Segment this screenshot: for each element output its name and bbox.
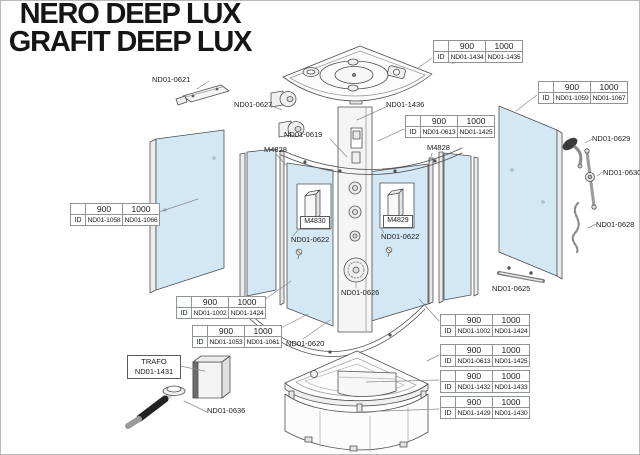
size-table-tray-front-panel: 900 1000 ID ND01-1429 ND01-1430 xyxy=(440,396,530,419)
size-table-right-back-panel: 900 1000 ID ND01-1059 ND01-1067 xyxy=(538,81,628,104)
trafo-line1: TRAFO xyxy=(128,357,180,367)
col-1000: 1000 xyxy=(493,315,530,326)
code-900: ND01-1053 xyxy=(208,337,245,348)
table-corner-cell xyxy=(177,297,192,308)
right-door-drawing xyxy=(368,164,428,322)
part-label-top-curved-rail: ND01-0619 xyxy=(284,131,322,139)
table-corner-cell xyxy=(193,326,208,337)
size-table-door-right: 900 1000 ID ND01-1002 ND01-1424 xyxy=(440,314,530,337)
size-table-left-back-panel: 900 1000 ID ND01-1058 ND01-1066 xyxy=(70,203,160,226)
code-1000: ND01-1061 xyxy=(245,337,282,348)
col-1000: 1000 xyxy=(493,371,530,382)
right-back-panel-drawing xyxy=(499,106,562,279)
col-900: 900 xyxy=(86,204,123,215)
size-table-fixed-glass: 900 1000 ID ND01-1053 ND01-1061 xyxy=(192,325,282,348)
table-corner-cell xyxy=(406,116,421,127)
col-1000: 1000 xyxy=(458,116,495,127)
size-table-door-left: 900 1000 ID ND01-1002 ND01-1424 xyxy=(176,296,266,319)
col-900: 900 xyxy=(456,345,493,356)
speaker-unit-drawing xyxy=(344,258,368,282)
boxed-label-magnet-profile-left: M4830 xyxy=(300,216,330,229)
col-900: 900 xyxy=(456,315,493,326)
col-900: 900 xyxy=(456,371,493,382)
hand-shower-drawing xyxy=(561,136,582,168)
row-id: ID xyxy=(539,93,554,104)
row-id: ID xyxy=(441,356,456,367)
table-corner-cell xyxy=(441,371,456,382)
col-1000: 1000 xyxy=(229,297,266,308)
row-id: ID xyxy=(193,337,208,348)
size-table-roof: 900 1000 ID ND01-1434 ND01-1435 xyxy=(433,40,523,63)
part-label-door-rollers: ND01-0627 xyxy=(234,101,272,109)
towel-bar-drawing xyxy=(499,267,543,281)
code-1000: ND01-1067 xyxy=(591,93,628,104)
row-id: ID xyxy=(406,127,421,138)
top-bracket-drawing xyxy=(176,85,229,105)
code-900: ND01-1432 xyxy=(456,382,493,393)
code-1000: ND01-1433 xyxy=(493,382,530,393)
code-900: ND01-1059 xyxy=(554,93,591,104)
code-900: ND01-1002 xyxy=(456,326,493,337)
col-1000: 1000 xyxy=(493,397,530,408)
table-corner-cell xyxy=(434,41,449,52)
code-900: ND01-0613 xyxy=(421,127,458,138)
catalog-page: NERO DEEP LUX GRAFIT DEEP LUX ND01-0621 … xyxy=(0,0,640,455)
shower-rail-drawing xyxy=(585,149,596,209)
code-900: ND01-1058 xyxy=(86,215,123,226)
size-table-shower-tray: 900 1000 ID ND01-1432 ND01-1433 xyxy=(440,370,530,393)
part-label-magnet-strip-left: M4828 xyxy=(264,146,287,154)
col-900: 900 xyxy=(192,297,229,308)
part-label-top-bracket: ND01-0621 xyxy=(152,76,190,84)
part-label-drain-hose: ND01-0636 xyxy=(207,407,245,415)
part-label-shower-hose: ND01-0628 xyxy=(596,221,634,229)
code-1000: ND01-1066 xyxy=(123,215,160,226)
boxed-label-magnet-profile-right: M4829 xyxy=(383,215,413,228)
row-id: ID xyxy=(177,308,192,319)
col-900: 900 xyxy=(421,116,458,127)
table-corner-cell xyxy=(441,315,456,326)
code-1000: ND01-1435 xyxy=(486,52,523,63)
code-1000: ND01-1425 xyxy=(458,127,495,138)
code-1000: ND01-1430 xyxy=(493,408,530,419)
size-table-door-glass-lower: 900 1000 ID ND01-0613 ND01-1425 xyxy=(440,344,530,367)
size-table-door-glass-upper: 900 1000 ID ND01-0613 ND01-1425 xyxy=(405,115,495,138)
page-title-line2: GRAFIT DEEP LUX xyxy=(8,28,252,56)
transformer-drawing xyxy=(193,356,230,398)
drain-hose-drawing xyxy=(128,386,185,426)
part-label-door-knob-right: ND01-0622 xyxy=(381,233,419,241)
code-1000: ND01-1424 xyxy=(493,326,530,337)
col-900: 900 xyxy=(554,82,591,93)
page-title-line1: NERO DEEP LUX xyxy=(8,0,252,28)
part-label-hand-shower: ND01-0629 xyxy=(592,135,630,143)
part-label-magnet-strip-right: M4828 xyxy=(427,144,450,152)
table-corner-cell xyxy=(539,82,554,93)
code-1000: ND01-1425 xyxy=(493,356,530,367)
table-corner-cell xyxy=(71,204,86,215)
left-door-drawing xyxy=(287,163,333,326)
part-label-speaker-unit: ND01-0626 xyxy=(341,289,379,297)
row-id: ID xyxy=(441,326,456,337)
col-900: 900 xyxy=(208,326,245,337)
shower-hose-drawing xyxy=(573,203,579,252)
row-id: ID xyxy=(441,382,456,393)
page-title: NERO DEEP LUX GRAFIT DEEP LUX xyxy=(8,0,252,56)
col-900: 900 xyxy=(449,41,486,52)
code-900: ND01-1429 xyxy=(456,408,493,419)
col-900: 900 xyxy=(456,397,493,408)
col-1000: 1000 xyxy=(245,326,282,337)
code-900: ND01-1002 xyxy=(192,308,229,319)
part-label-bottom-curved-rail: ND01-0620 xyxy=(286,340,324,348)
row-id: ID xyxy=(434,52,449,63)
code-1000: ND01-1424 xyxy=(229,308,266,319)
part-label-control-column: ND01-1436 xyxy=(386,101,424,109)
table-corner-cell xyxy=(441,397,456,408)
part-label-towel-bar: ND01-0625 xyxy=(492,285,530,293)
code-900: ND01-0613 xyxy=(456,356,493,367)
right-fixed-glass-drawing xyxy=(429,152,478,304)
col-1000: 1000 xyxy=(591,82,628,93)
col-1000: 1000 xyxy=(123,204,160,215)
code-900: ND01-1434 xyxy=(449,52,486,63)
part-label-shower-rail: ND01-0630 xyxy=(603,169,640,177)
col-1000: 1000 xyxy=(493,345,530,356)
table-corner-cell xyxy=(441,345,456,356)
trafo-line2: ND01-1431 xyxy=(128,367,180,377)
left-fixed-glass-drawing xyxy=(240,149,284,305)
col-1000: 1000 xyxy=(486,41,523,52)
trafo-label-box: TRAFO ND01-1431 xyxy=(127,355,181,379)
shower-tray-drawing xyxy=(285,351,428,413)
row-id: ID xyxy=(71,215,86,226)
row-id: ID xyxy=(441,408,456,419)
part-label-door-knob-left: ND01-0622 xyxy=(291,236,329,244)
